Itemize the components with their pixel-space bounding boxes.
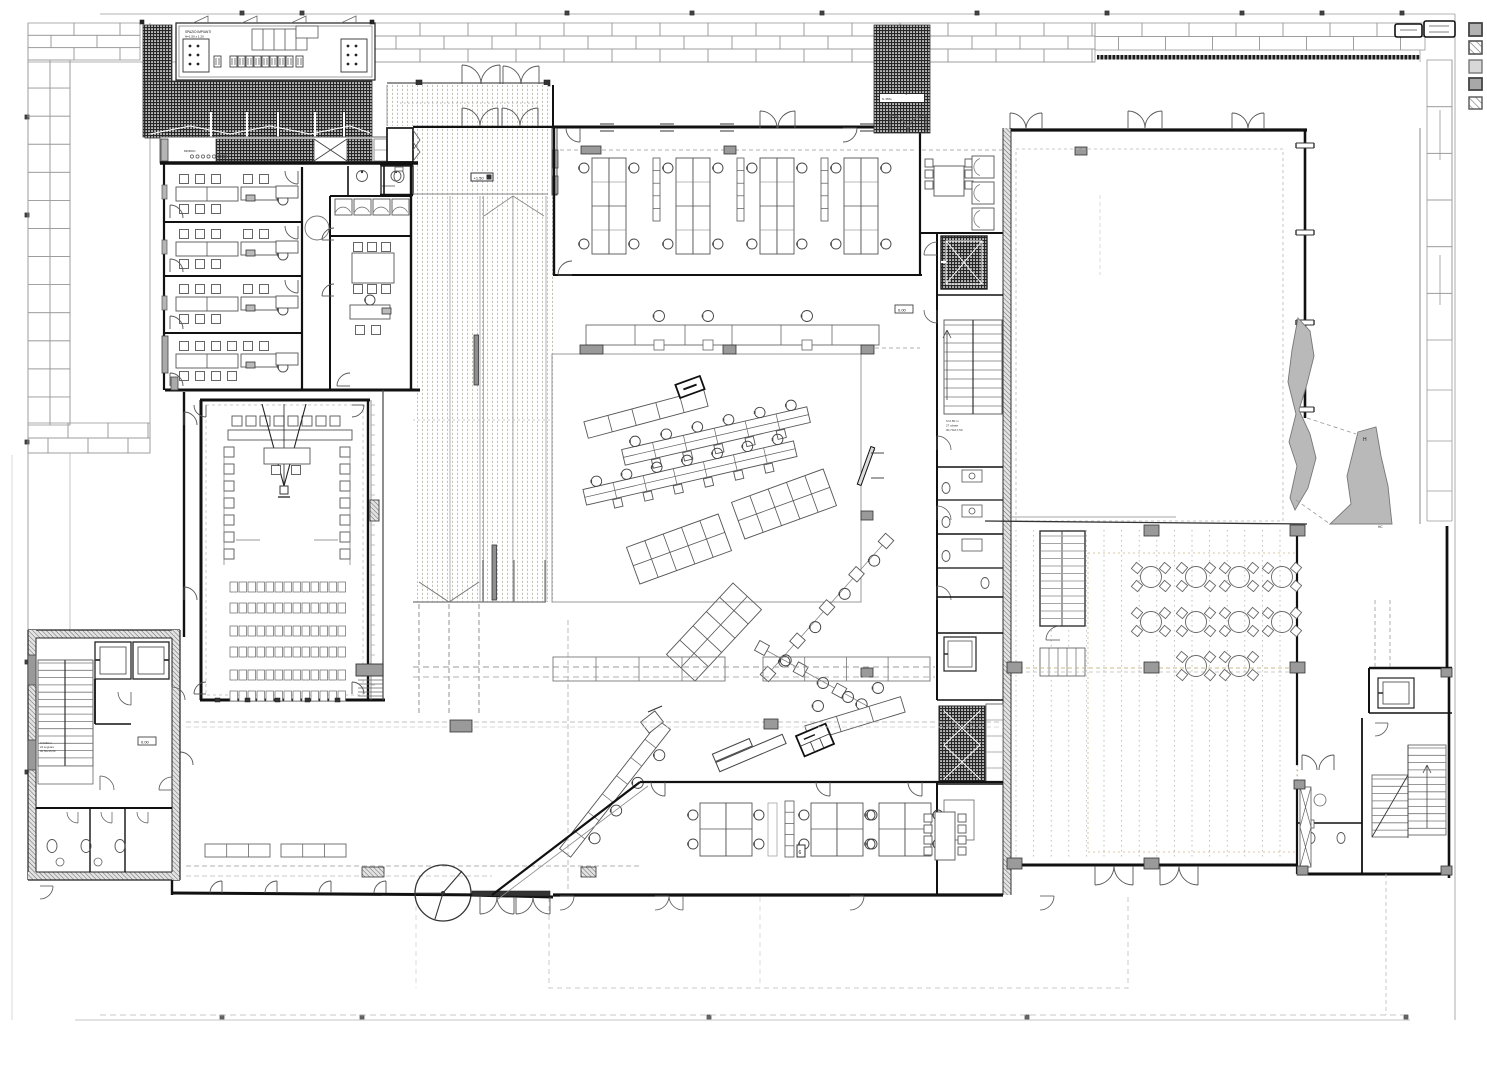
svg-text:+1.50: +1.50 xyxy=(474,176,485,181)
svg-text:MODOC: MODOC xyxy=(184,149,196,153)
svg-text:H=1.50 x 1.20: H=1.50 x 1.20 xyxy=(185,35,204,39)
svg-text:N. PRG: N. PRG xyxy=(882,97,892,101)
svg-text:30,70x17,50: 30,70x17,50 xyxy=(946,428,963,432)
svg-text:HC: HC xyxy=(1378,525,1383,529)
svg-text:SPAZIO IMPIANTI: SPAZIO IMPIANTI xyxy=(185,30,211,34)
svg-text:6: 6 xyxy=(799,850,802,856)
svg-text:0.00: 0.00 xyxy=(898,308,907,313)
svg-text:0.00: 0.00 xyxy=(141,740,150,745)
svg-text:N: N xyxy=(905,92,907,96)
svg-text:H: H xyxy=(1363,437,1367,443)
svg-text:h=2.80 m: h=2.80 m xyxy=(946,419,959,423)
svg-text:27 alzate: 27 alzate xyxy=(946,424,959,428)
svg-text:30,50x15,50: 30,50x15,50 xyxy=(40,749,56,753)
